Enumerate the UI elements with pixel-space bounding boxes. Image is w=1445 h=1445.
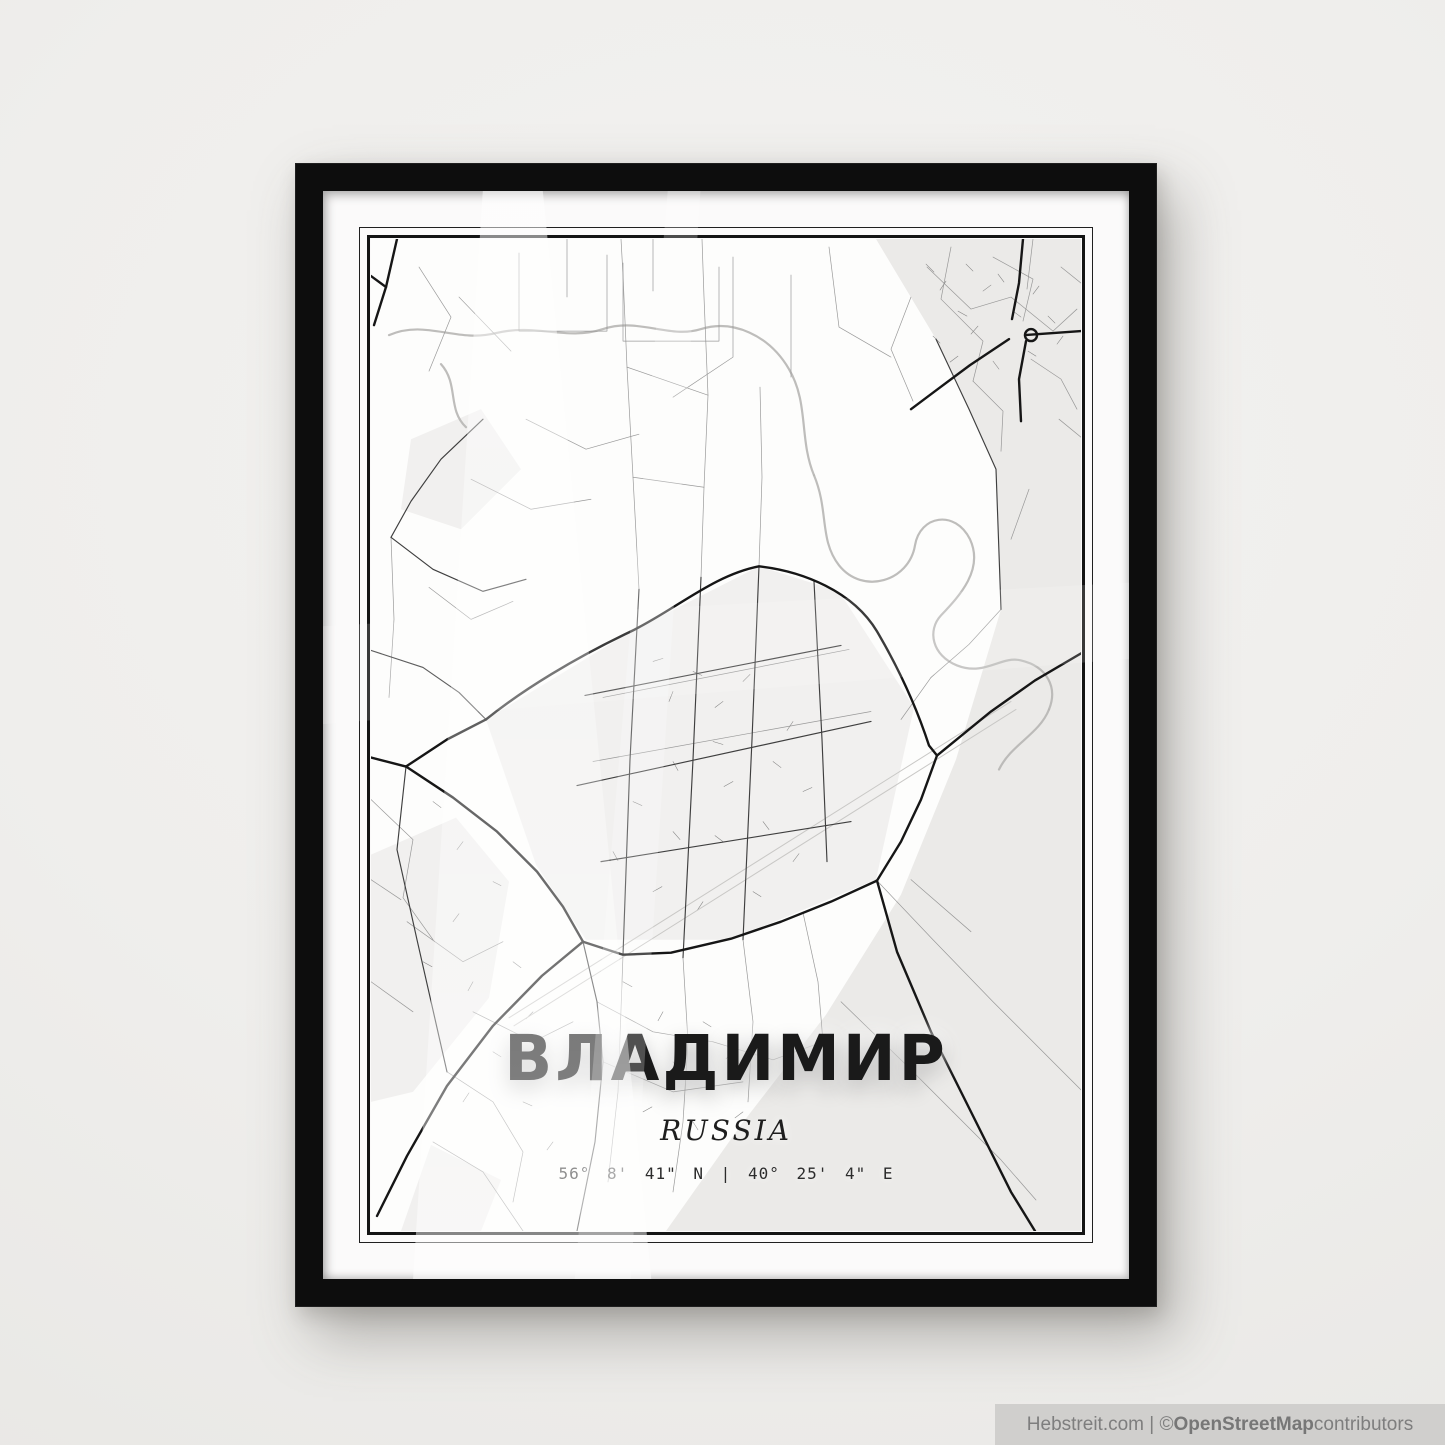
wall: ВЛАДИМИР RUSSIA 56° 8' 41" N | 40° 25' 4… bbox=[0, 0, 1445, 1445]
poster-mat: ВЛАДИМИР RUSSIA 56° 8' 41" N | 40° 25' 4… bbox=[323, 191, 1129, 1279]
map-svg bbox=[371, 239, 1081, 1231]
map-area: ВЛАДИМИР RUSSIA 56° 8' 41" N | 40° 25' 4… bbox=[371, 239, 1081, 1231]
watermark-brand: OpenStreetMap bbox=[1174, 1414, 1314, 1436]
watermark-suffix: contributors bbox=[1314, 1414, 1413, 1436]
watermark-bar: Hebstreit.com | © OpenStreetMap contribu… bbox=[995, 1404, 1445, 1445]
picture-frame: ВЛАДИМИР RUSSIA 56° 8' 41" N | 40° 25' 4… bbox=[295, 163, 1157, 1307]
watermark-prefix: Hebstreit.com | © bbox=[1027, 1414, 1174, 1436]
